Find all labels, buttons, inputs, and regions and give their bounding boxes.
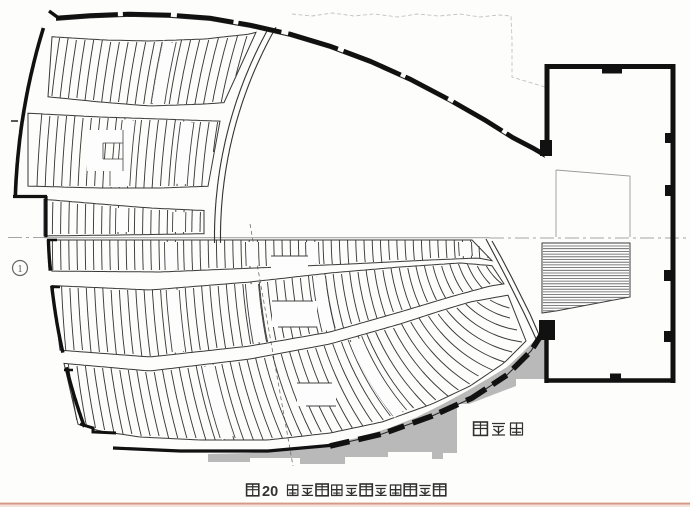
svg-text:1: 1 bbox=[18, 264, 23, 275]
svg-text:20: 20 bbox=[262, 484, 278, 500]
